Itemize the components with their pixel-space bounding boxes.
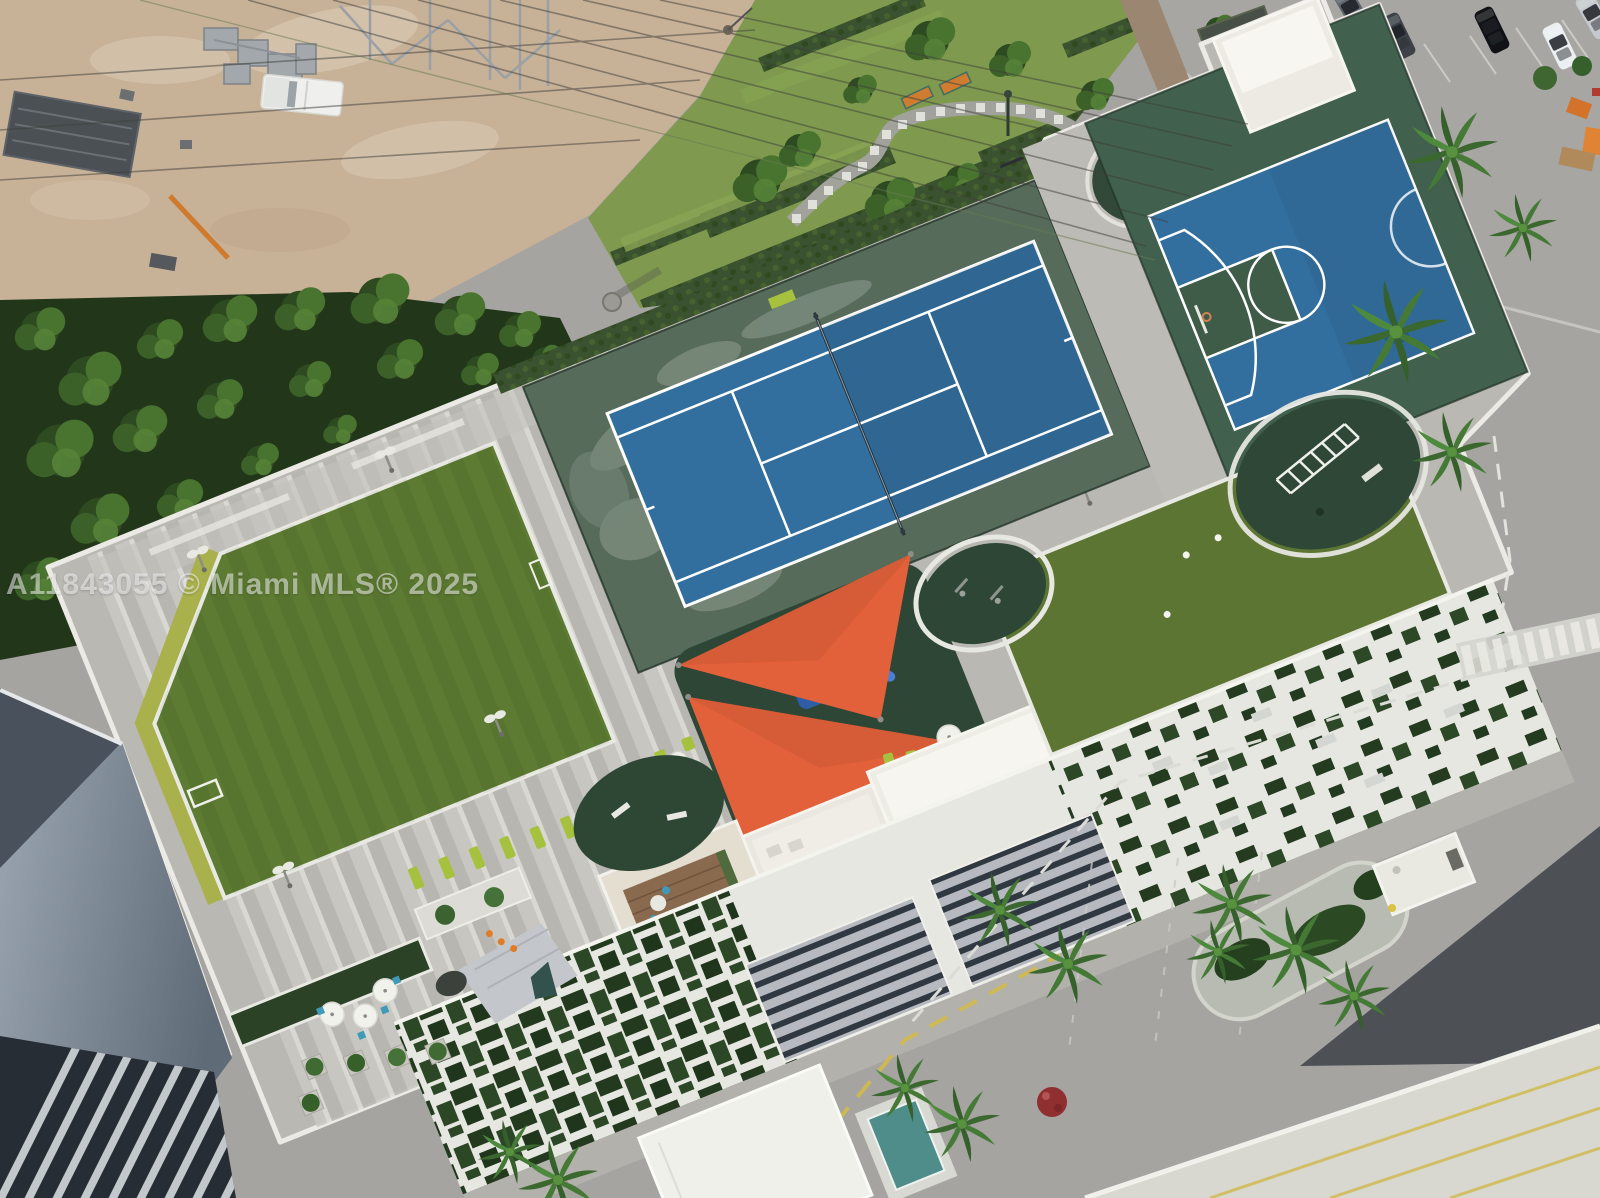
concrete-pole [603, 293, 621, 311]
bollard [1388, 904, 1396, 912]
flower-planter [1037, 1087, 1067, 1117]
aerial-photo-canvas [0, 0, 1600, 1198]
aerial-photo: A11843055 © Miami MLS® 2025 [0, 0, 1600, 1198]
